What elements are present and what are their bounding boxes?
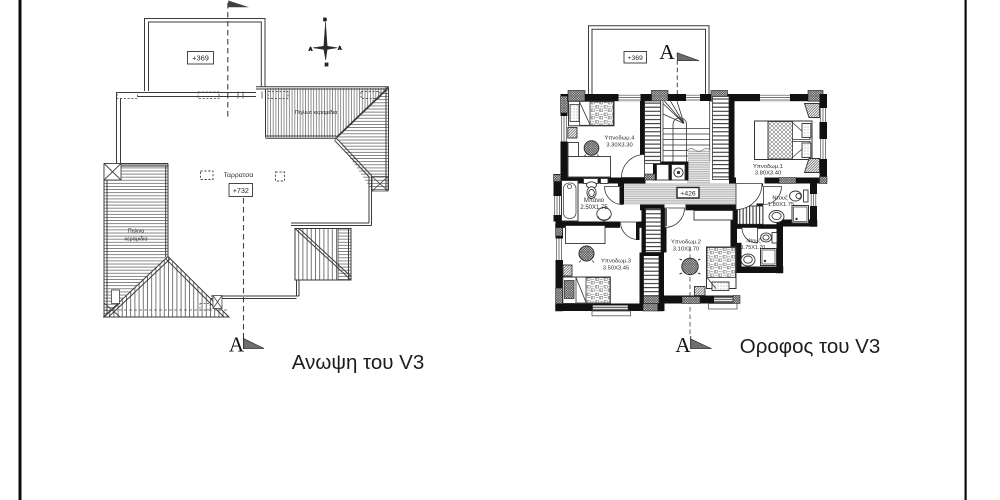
svg-text:1.80X1.75: 1.80X1.75 [768, 202, 794, 208]
svg-text:1.75X1.70: 1.75X1.70 [741, 245, 766, 251]
svg-text:A: A [229, 333, 245, 357]
svg-text:Μπάνιο: Μπάνιο [584, 197, 605, 204]
svg-text:+369: +369 [628, 55, 644, 62]
svg-text:Ντουζ: Ντουζ [772, 196, 788, 202]
svg-text:+369: +369 [192, 54, 209, 63]
svg-text:Πηλινα κεραμιδια: Πηλινα κεραμιδια [295, 110, 338, 116]
svg-text:3.80X3.40: 3.80X3.40 [755, 171, 781, 177]
svg-text:Πηλινα: Πηλινα [128, 229, 145, 235]
svg-text:Ντουζ: Ντουζ [746, 239, 761, 245]
svg-text:Υπνοδωμ.4: Υπνοδωμ.4 [605, 136, 636, 142]
svg-text:2.50X1.75: 2.50X1.75 [580, 205, 608, 211]
svg-text:Οροφος του V3: Οροφος του V3 [740, 335, 880, 358]
svg-text:3.30X3.30: 3.30X3.30 [606, 143, 632, 149]
svg-text:+732: +732 [233, 186, 249, 195]
svg-text:3.10X3.70: 3.10X3.70 [673, 247, 699, 253]
svg-text:A: A [659, 40, 675, 64]
svg-text:3.50X3.45: 3.50X3.45 [603, 266, 629, 272]
svg-text:Ταρρατσα: Ταρρατσα [224, 172, 254, 179]
svg-text:Υπνοδωμ.3: Υπνοδωμ.3 [601, 259, 631, 265]
svg-text:A: A [675, 333, 691, 357]
svg-text:Υπνοδωμ.2: Υπνοδωμ.2 [671, 240, 701, 246]
svg-text:Ανωψη του V3: Ανωψη του V3 [292, 351, 424, 374]
svg-text:Υπνοδωμ.1: Υπνοδωμ.1 [753, 164, 783, 170]
svg-text:+426: +426 [680, 191, 696, 198]
svg-text:κεραμιδια: κεραμιδια [125, 237, 148, 243]
